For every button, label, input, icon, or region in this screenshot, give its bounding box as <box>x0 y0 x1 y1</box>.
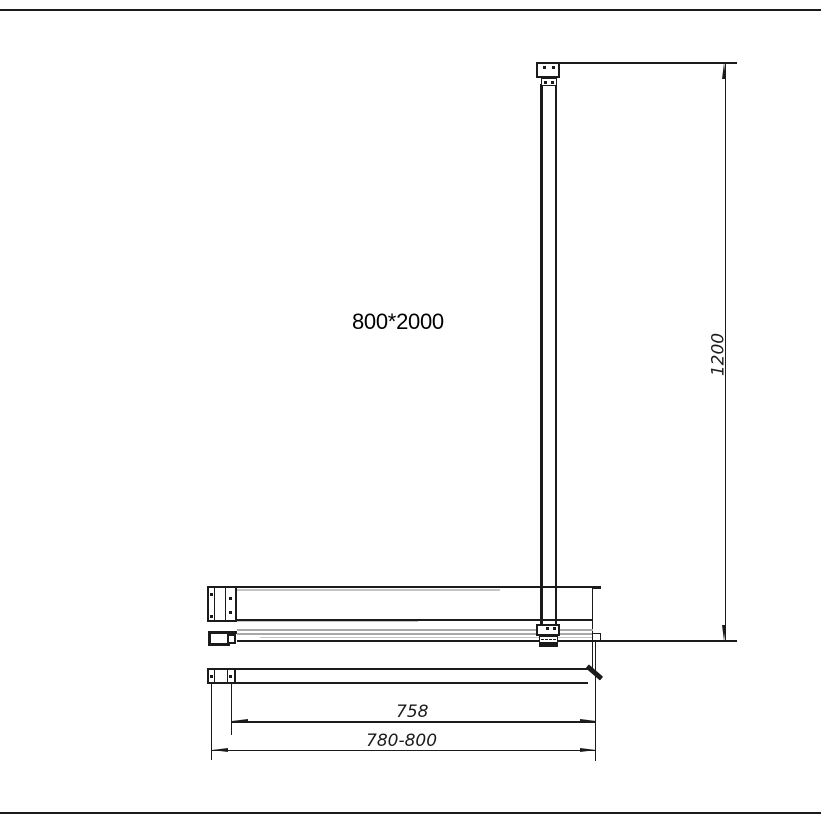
ext-line-right <box>595 642 596 761</box>
dim-ext-line-top <box>558 62 737 64</box>
right-end-vertical-line <box>592 586 593 670</box>
screw-mark <box>229 675 232 678</box>
top-rail-top-line <box>207 586 593 588</box>
wall-profile-bottom-divider <box>227 670 228 682</box>
foot-gasket-dash-line <box>541 639 557 640</box>
wall-profile-top-divider <box>214 588 215 620</box>
border-bottom-line <box>0 812 821 814</box>
technical-drawing: 800*2000 1200 <box>0 0 821 821</box>
ext-line-left-inner <box>231 684 232 735</box>
dim-label-1200: 1200 <box>711 333 728 377</box>
top-rail-shadow-line-b <box>237 621 418 622</box>
glass-end-cap <box>592 633 601 642</box>
dim-arrow-left-icon <box>232 719 248 723</box>
screw-mark <box>551 81 554 84</box>
wall-channel-clamp <box>227 634 236 643</box>
screw-mark <box>229 597 232 600</box>
dim-label-758: 758 <box>396 704 428 721</box>
dim-label-780-800: 780-800 <box>366 733 437 750</box>
screw-mark <box>210 675 213 678</box>
bottom-rail-top-line <box>207 668 588 670</box>
dim-arrow-down-icon <box>722 625 726 641</box>
bottom-rail-bottom-line <box>207 682 588 684</box>
screw-mark <box>210 615 213 618</box>
screw-mark <box>546 627 549 630</box>
support-bar-left-edge <box>540 84 543 625</box>
dim-arrow-left-icon <box>212 748 228 752</box>
screw-mark <box>544 81 547 84</box>
border-top-line <box>0 9 821 11</box>
top-rail-shadow-line-a <box>237 589 500 590</box>
support-bar-foot-base <box>539 643 559 647</box>
screw-mark <box>229 611 232 614</box>
size-label: 800*2000 <box>352 311 444 333</box>
dim-arrow-up-icon <box>722 63 726 79</box>
wall-profile-top-divider <box>225 588 226 620</box>
wall-profile-bottom-divider <box>214 670 215 682</box>
wall-mount-bracket <box>536 62 560 78</box>
top-rail-end-tick <box>592 586 601 589</box>
glass-edge-bottom-line <box>237 640 737 642</box>
screw-mark <box>210 593 213 596</box>
screw-mark <box>543 66 546 69</box>
screw-mark <box>553 627 556 630</box>
dim-arrow-right-icon <box>580 748 596 752</box>
dim-arrow-right-icon <box>580 719 596 723</box>
screw-mark <box>552 66 555 69</box>
support-bar-right-edge <box>555 84 556 625</box>
